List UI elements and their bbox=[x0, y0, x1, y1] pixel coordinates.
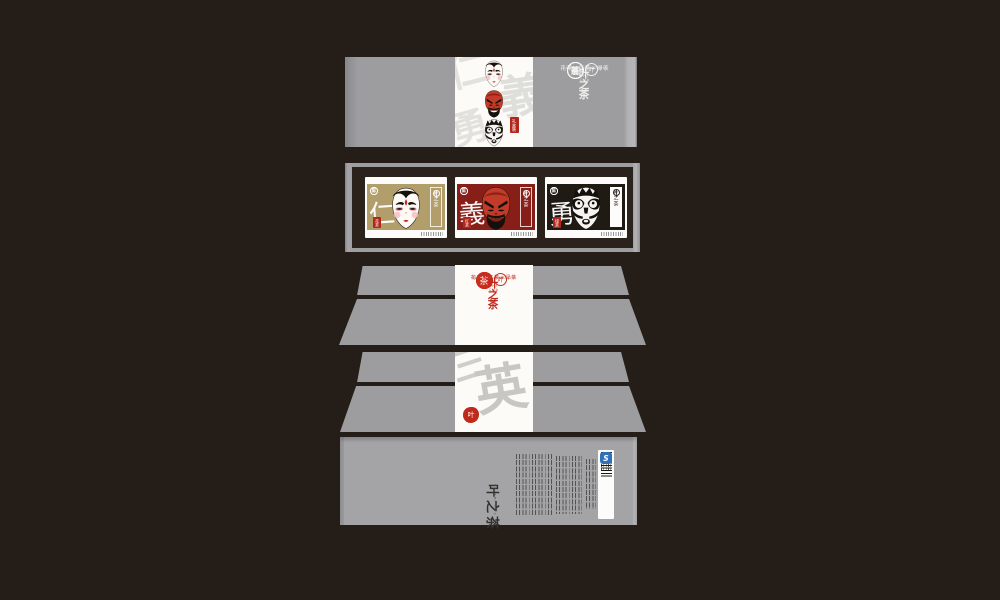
product-info-fineprint bbox=[556, 456, 582, 514]
box-back-label: 三 英 叶 bbox=[455, 352, 533, 432]
logo-seal-icon: 蜀 bbox=[550, 187, 558, 195]
brand-subtitle-rotated: YE ZHI CHA bbox=[493, 484, 497, 516]
panel-info-back: 叶之茶 YE ZHI CHA S bbox=[340, 437, 637, 525]
card-brand-strip: 叶 叶之茶 bbox=[520, 187, 532, 227]
product-info-fineprint bbox=[586, 459, 596, 509]
card-art-gold: 三 蜀 仁 花茶 叶 叶之茶 bbox=[367, 184, 445, 230]
box-face-left bbox=[340, 386, 455, 432]
card-art-red: 三 蜀 義 红茶 叶 叶之茶 bbox=[457, 184, 535, 230]
brand-subtitle: YE ZHI CHA bbox=[489, 280, 499, 292]
lid-center-label: 仁 義 勇 礼盒装 bbox=[455, 57, 533, 147]
card-footer-fineprint bbox=[421, 232, 443, 236]
white-face-mask-icon bbox=[386, 184, 426, 230]
white-face-mask-icon bbox=[481, 58, 507, 88]
card-brand-strip: 叶 叶之茶 bbox=[430, 187, 442, 227]
watermark-character: 英 bbox=[471, 360, 531, 420]
logo-seal-icon: 蜀 bbox=[460, 187, 468, 195]
box-front-label: 三 蜀 茗 茶 SAN SHU MING CHA 花茶+红茶+绿茶 叶 叶之茶 … bbox=[455, 265, 533, 345]
panel-box-lid: 仁 義 勇 礼盒装 三 蜀 茗 茶 SAN SHU MING CHA 花茶+红茶… bbox=[345, 57, 637, 147]
box-flap-right bbox=[533, 266, 629, 295]
box-face-right bbox=[533, 299, 646, 345]
red-face-mask-icon bbox=[476, 184, 516, 230]
tray-dark-interior: 三 蜀 仁 花茶 叶 叶之茶 bbox=[352, 167, 633, 248]
barcode-strip: S bbox=[598, 450, 614, 519]
decorative-line bbox=[436, 190, 437, 198]
tea-type-seal: 花茶 bbox=[373, 217, 381, 228]
logo-seal-icon: 蜀 bbox=[370, 187, 378, 195]
tea-card-yong: 三 蜀 勇 绿茶 叶 叶之茶 bbox=[545, 177, 627, 238]
box-face-left bbox=[339, 299, 455, 345]
lid-left-fold bbox=[345, 57, 357, 147]
card-footer-fineprint bbox=[601, 232, 623, 236]
black-face-mask-icon bbox=[566, 184, 606, 230]
black-face-mask-icon bbox=[481, 117, 507, 147]
product-info-fineprint bbox=[516, 454, 552, 516]
decorative-line bbox=[616, 189, 617, 197]
box-flap-left bbox=[345, 352, 455, 382]
box-flap-right bbox=[533, 352, 629, 382]
qs-quality-mark-icon: S bbox=[600, 452, 612, 464]
design-presentation-canvas: 仁 義 勇 礼盒装 三 蜀 茗 茶 SAN SHU MING CHA 花茶+红茶… bbox=[0, 0, 1000, 600]
tea-type-seal: 绿茶 bbox=[553, 217, 561, 228]
brand-subtitle: YE ZHI CHA bbox=[580, 70, 590, 82]
card-art-black: 三 蜀 勇 绿茶 叶 叶之茶 bbox=[547, 184, 625, 230]
card-footer-fineprint bbox=[511, 232, 533, 236]
tea-card-yi: 三 蜀 義 红茶 叶 叶之茶 bbox=[455, 177, 537, 238]
lid-logo-block: 三 蜀 茗 茶 SAN SHU MING CHA 花茶+红茶+绿茶 叶 叶之茶 … bbox=[543, 62, 627, 144]
box-flap-left bbox=[345, 266, 455, 295]
red-brand-seal: 叶 bbox=[463, 407, 479, 423]
panel-open-tray: 三 蜀 仁 花茶 叶 叶之茶 bbox=[345, 163, 640, 252]
tea-type-seal: 红茶 bbox=[463, 217, 471, 228]
red-face-mask-icon bbox=[481, 88, 507, 118]
rotated-brand-block: 叶之茶 YE ZHI CHA bbox=[486, 455, 510, 513]
decorative-line bbox=[526, 190, 527, 198]
box-face-right bbox=[533, 386, 646, 432]
tea-card-ren: 三 蜀 仁 花茶 叶 叶之茶 bbox=[365, 177, 447, 238]
card-brand-strip: 叶 叶之茶 bbox=[610, 187, 622, 227]
gift-box-seal: 礼盒装 bbox=[510, 117, 519, 133]
